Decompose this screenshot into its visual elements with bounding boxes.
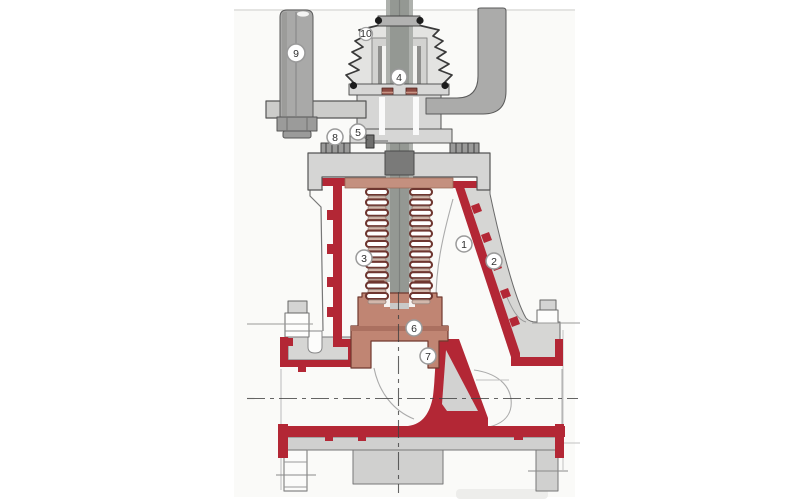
svg-text:4: 4 bbox=[396, 72, 402, 84]
svg-text:7: 7 bbox=[425, 351, 431, 363]
svg-text:9: 9 bbox=[293, 48, 299, 60]
svg-text:5: 5 bbox=[355, 127, 361, 139]
svg-text:8: 8 bbox=[332, 132, 338, 144]
svg-text:10: 10 bbox=[360, 28, 372, 40]
svg-text:1: 1 bbox=[461, 239, 467, 251]
svg-text:6: 6 bbox=[411, 323, 417, 335]
svg-text:2: 2 bbox=[491, 256, 497, 268]
svg-text:3: 3 bbox=[361, 253, 367, 265]
